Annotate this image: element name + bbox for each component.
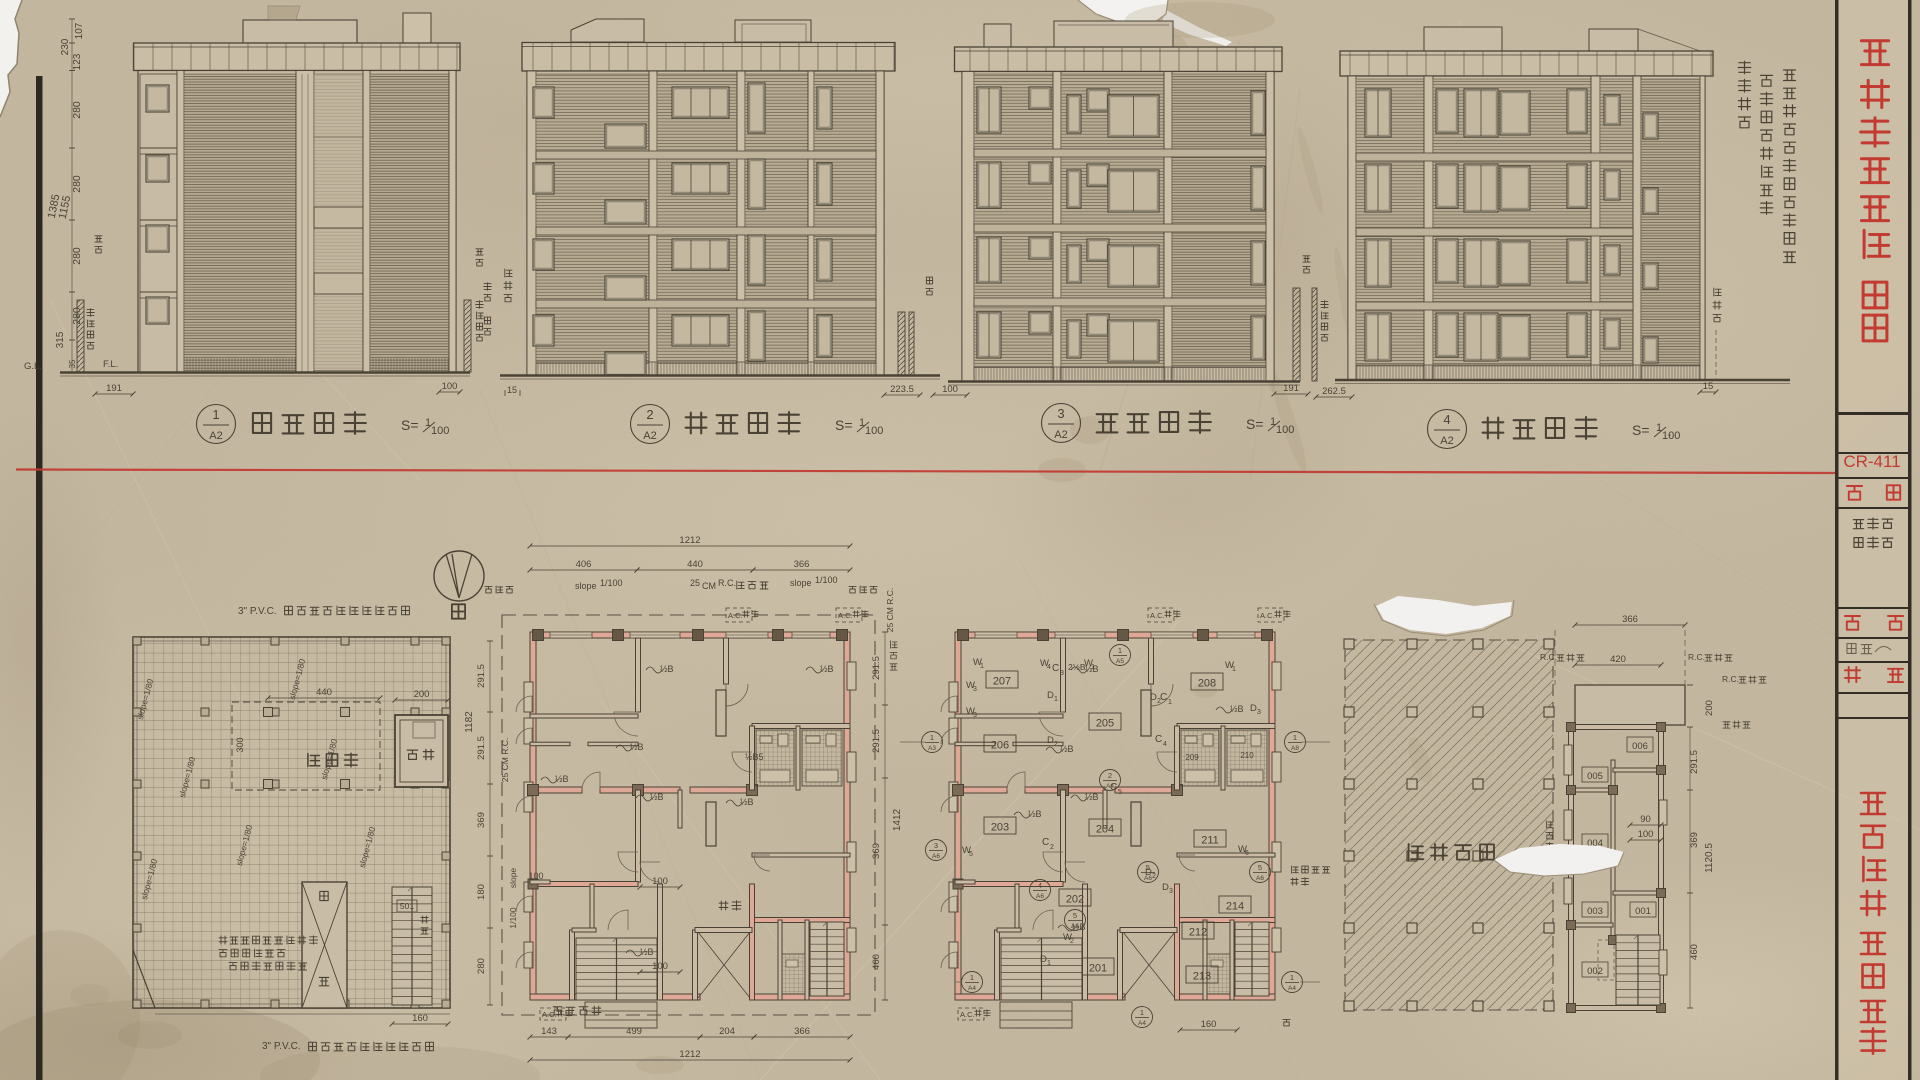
svg-text:R.C.: R.C. [718,578,736,588]
svg-text:A.C.: A.C. [1150,611,1165,620]
svg-text:209: 209 [1185,753,1199,762]
svg-text:S=: S= [1632,422,1650,438]
svg-text:1: 1 [1168,699,1172,706]
svg-text:A6: A6 [1071,923,1079,930]
svg-text:100: 100 [442,381,458,392]
svg-text:D: D [1250,703,1257,714]
svg-text:A4: A4 [1106,783,1114,790]
svg-text:A.C.: A.C. [542,1010,557,1019]
svg-text:1/100: 1/100 [600,578,623,588]
svg-text:R.C.: R.C. [1688,652,1705,662]
svg-text:204: 204 [719,1026,735,1037]
svg-text:280: 280 [476,958,487,974]
svg-text:203: 203 [991,822,1009,834]
svg-text:1: 1 [1118,646,1122,655]
svg-text:3: 3 [973,686,977,693]
svg-text:35: 35 [68,359,77,368]
svg-text:½B: ½B [650,792,664,802]
svg-text:R.C.: R.C. [1540,652,1557,662]
svg-text:2: 2 [646,407,653,422]
svg-text:005: 005 [1587,771,1603,782]
svg-text:6: 6 [1245,850,1249,857]
svg-text:214: 214 [1226,901,1244,913]
svg-text:291.5: 291.5 [871,656,882,680]
svg-text:002: 002 [1587,966,1603,977]
svg-text:160: 160 [1201,1019,1217,1030]
svg-text:3: 3 [1060,670,1064,677]
svg-text:1212: 1212 [679,1049,700,1060]
svg-text:420: 420 [1610,654,1626,665]
svg-text:143: 143 [541,1026,557,1037]
svg-text:½B: ½B [640,947,654,957]
svg-text:1/100: 1/100 [815,575,838,585]
svg-text:½B: ½B [1028,809,1042,819]
svg-text:006: 006 [1632,741,1648,752]
svg-text:C: C [1052,663,1059,674]
svg-text:204: 204 [1096,824,1114,836]
svg-text:D: D [1150,692,1157,703]
svg-text:G.L.: G.L. [24,361,42,372]
svg-text:291.5: 291.5 [1689,750,1700,774]
svg-text:369: 369 [1689,832,1700,848]
svg-text:2: 2 [1108,771,1112,780]
svg-text:S=: S= [401,417,419,433]
svg-text:25 CM R.C.: 25 CM R.C. [500,738,510,782]
svg-text:1: 1 [1054,696,1058,703]
svg-text:A3: A3 [928,745,936,752]
svg-text:366: 366 [794,1026,810,1037]
svg-text:100: 100 [652,961,668,972]
svg-text:A6: A6 [932,853,940,860]
svg-text:15: 15 [507,385,517,395]
svg-text:1412: 1412 [892,808,903,831]
svg-text:200: 200 [414,689,430,700]
svg-text:½B: ½B [630,742,644,752]
svg-text:100: 100 [942,384,958,395]
svg-text:210: 210 [1240,751,1254,760]
svg-text:A4: A4 [968,985,976,992]
svg-text:201: 201 [1089,963,1107,975]
svg-text:D: D [1162,882,1169,893]
svg-text:5: 5 [969,851,973,858]
svg-text:.: . [1668,424,1672,439]
svg-text:25: 25 [690,578,700,588]
svg-text:100: 100 [528,871,543,881]
svg-text:D: D [1047,690,1054,701]
svg-text:003: 003 [1587,906,1603,917]
svg-text:291.5: 291.5 [476,736,487,760]
svg-text:223.5: 223.5 [890,384,914,395]
svg-text:slope: slope [508,868,518,889]
svg-text:100: 100 [1638,829,1654,840]
svg-text:100: 100 [1276,424,1294,436]
svg-text:C: C [1042,837,1049,848]
svg-text:½B: ½B [1060,744,1074,754]
svg-text:5: 5 [1258,863,1262,872]
svg-text:A6: A6 [1036,893,1044,900]
svg-text:100: 100 [865,425,883,437]
svg-text:A4: A4 [1288,985,1296,992]
svg-text:3" P.V.C.: 3" P.V.C. [238,606,277,617]
svg-text:107: 107 [74,22,85,39]
svg-text:262.5: 262.5 [1322,386,1346,397]
svg-text:3" P.V.C.: 3" P.V.C. [262,1041,301,1052]
svg-text:202: 202 [1066,894,1084,906]
svg-text:3: 3 [1169,888,1173,895]
svg-text:A4: A4 [1138,1020,1146,1027]
svg-text:180: 180 [476,884,487,900]
svg-text:A.C.: A.C. [960,1010,975,1019]
svg-text:A8: A8 [1291,745,1299,752]
svg-text:R.C.: R.C. [1722,674,1739,684]
svg-text:366: 366 [1622,614,1638,625]
svg-text:3: 3 [1257,709,1261,716]
svg-text:CR-411: CR-411 [1843,452,1900,471]
svg-text:A.C.: A.C. [1260,611,1275,620]
svg-text:S=: S= [1246,416,1264,432]
svg-text:280: 280 [71,101,83,119]
svg-text:280: 280 [71,175,83,193]
svg-text:A2: A2 [1054,429,1067,441]
svg-text:460: 460 [1689,944,1700,960]
svg-text:1: 1 [970,973,974,982]
svg-text:4: 4 [1038,881,1042,890]
svg-text:160: 160 [412,1013,428,1024]
svg-text:001: 001 [1635,906,1651,917]
svg-text:A.C.: A.C. [838,611,853,620]
svg-text:2: 2 [1070,938,1074,945]
svg-text:1: 1 [1140,1008,1144,1017]
svg-text:2: 2 [1054,741,1058,748]
svg-text:291.5: 291.5 [476,664,487,688]
svg-text:100: 100 [431,425,449,437]
svg-text:212: 212 [1189,927,1207,939]
svg-text:191: 191 [1283,383,1299,394]
svg-text:191: 191 [106,383,122,394]
svg-text:3: 3 [934,841,938,850]
svg-text:206: 206 [991,740,1009,752]
svg-text:3: 3 [1057,406,1064,421]
svg-text:slope: slope [790,578,812,588]
svg-text:4: 4 [1443,412,1450,427]
svg-text:300: 300 [235,737,245,752]
svg-text:½B: ½B [1230,704,1244,714]
svg-text:1: 1 [1293,733,1297,742]
svg-text:½B: ½B [660,664,674,674]
svg-text:CM: CM [702,581,716,591]
svg-text:207: 207 [993,676,1011,688]
svg-text:366: 366 [794,559,810,570]
svg-text:205: 205 [1096,718,1114,730]
svg-text:1/100: 1/100 [508,907,518,929]
svg-text:315: 315 [55,331,66,348]
svg-text:291.5: 291.5 [871,729,882,753]
svg-text:208: 208 [1198,678,1216,690]
svg-text:½B: ½B [820,664,834,674]
svg-text:1: 1 [1290,973,1294,982]
svg-text:A.C.: A.C. [728,611,743,620]
svg-text:501: 501 [400,901,414,911]
svg-text:A2: A2 [643,430,656,442]
svg-text:3: 3 [973,712,977,719]
svg-text:5: 5 [1146,863,1150,872]
svg-text:230: 230 [60,38,71,55]
svg-text:A2: A2 [1440,435,1453,447]
svg-text:4: 4 [1047,664,1051,671]
svg-text:1120.5: 1120.5 [1704,843,1715,873]
svg-text:½B: ½B [555,774,569,784]
svg-text:123: 123 [72,53,83,70]
svg-text:2: 2 [1050,844,1054,851]
svg-text:A5: A5 [1116,658,1124,665]
svg-text:½B: ½B [1085,792,1099,802]
svg-text:S=: S= [835,417,853,433]
svg-text:A6: A6 [1256,875,1264,882]
svg-text:211: 211 [1201,835,1219,847]
svg-text:1182: 1182 [464,711,475,733]
svg-text:F.L.: F.L. [103,359,118,370]
svg-text:½B: ½B [1085,664,1099,674]
svg-text:½B5: ½B5 [745,752,764,762]
svg-text:440: 440 [687,559,703,570]
svg-text:D: D [1047,735,1054,746]
svg-text:1: 1 [212,407,219,422]
svg-text:1: 1 [1047,960,1051,967]
svg-text:200: 200 [1704,700,1715,716]
svg-text:15: 15 [1703,381,1714,392]
svg-text:499: 499 [626,1026,642,1037]
svg-text:1: 1 [1232,666,1236,673]
svg-text:5: 5 [1073,911,1077,920]
svg-text:A2: A2 [209,430,222,442]
svg-text:90: 90 [1640,814,1651,825]
svg-text:1: 1 [930,733,934,742]
svg-text:C: C [1160,692,1167,703]
svg-text:440: 440 [316,687,332,698]
svg-text:½B: ½B [740,797,754,807]
svg-text:1212: 1212 [679,535,700,546]
svg-text:5: 5 [1118,789,1122,796]
svg-text:slope: slope [575,581,597,591]
svg-text:369: 369 [871,843,882,859]
svg-text:A6: A6 [1144,875,1152,882]
svg-text:4: 4 [1163,741,1167,748]
svg-text:280: 280 [71,247,83,265]
svg-text:369: 369 [476,812,487,828]
svg-text:D: D [1040,954,1047,965]
svg-text:1: 1 [980,663,984,670]
svg-text:C: C [1155,734,1162,745]
svg-text:213: 213 [1193,971,1211,983]
svg-text:2½B: 2½B [1068,662,1086,672]
svg-text:406: 406 [576,559,592,570]
svg-text:460: 460 [871,954,882,970]
svg-text:25 CM R.C.: 25 CM R.C. [885,588,895,632]
svg-text:100: 100 [652,876,668,887]
